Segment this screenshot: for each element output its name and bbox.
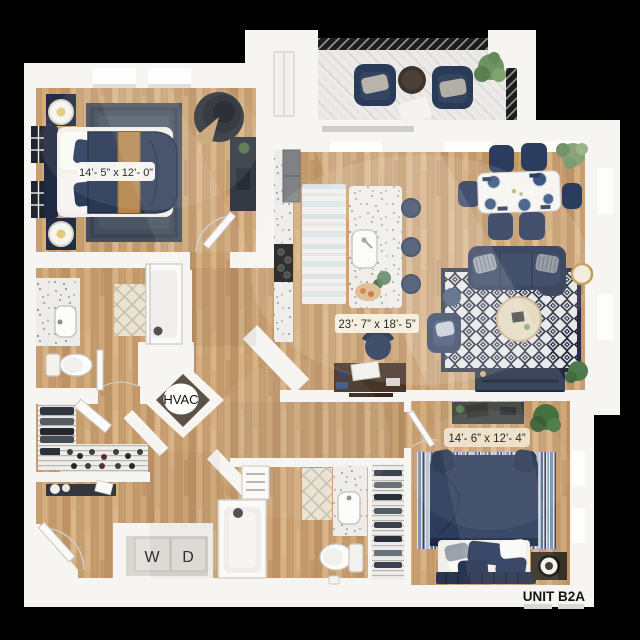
svg-text:14’- 5” x 12’- 0”: 14’- 5” x 12’- 0” <box>79 167 153 179</box>
svg-text:23’- 7” x 18’- 5”: 23’- 7” x 18’- 5” <box>338 319 416 331</box>
svg-text:14’- 6” x 12’- 4”: 14’- 6” x 12’- 4” <box>448 433 526 445</box>
svg-text:UNIT B2A: UNIT B2A <box>523 589 586 604</box>
svg-text:HVAC: HVAC <box>163 392 198 407</box>
